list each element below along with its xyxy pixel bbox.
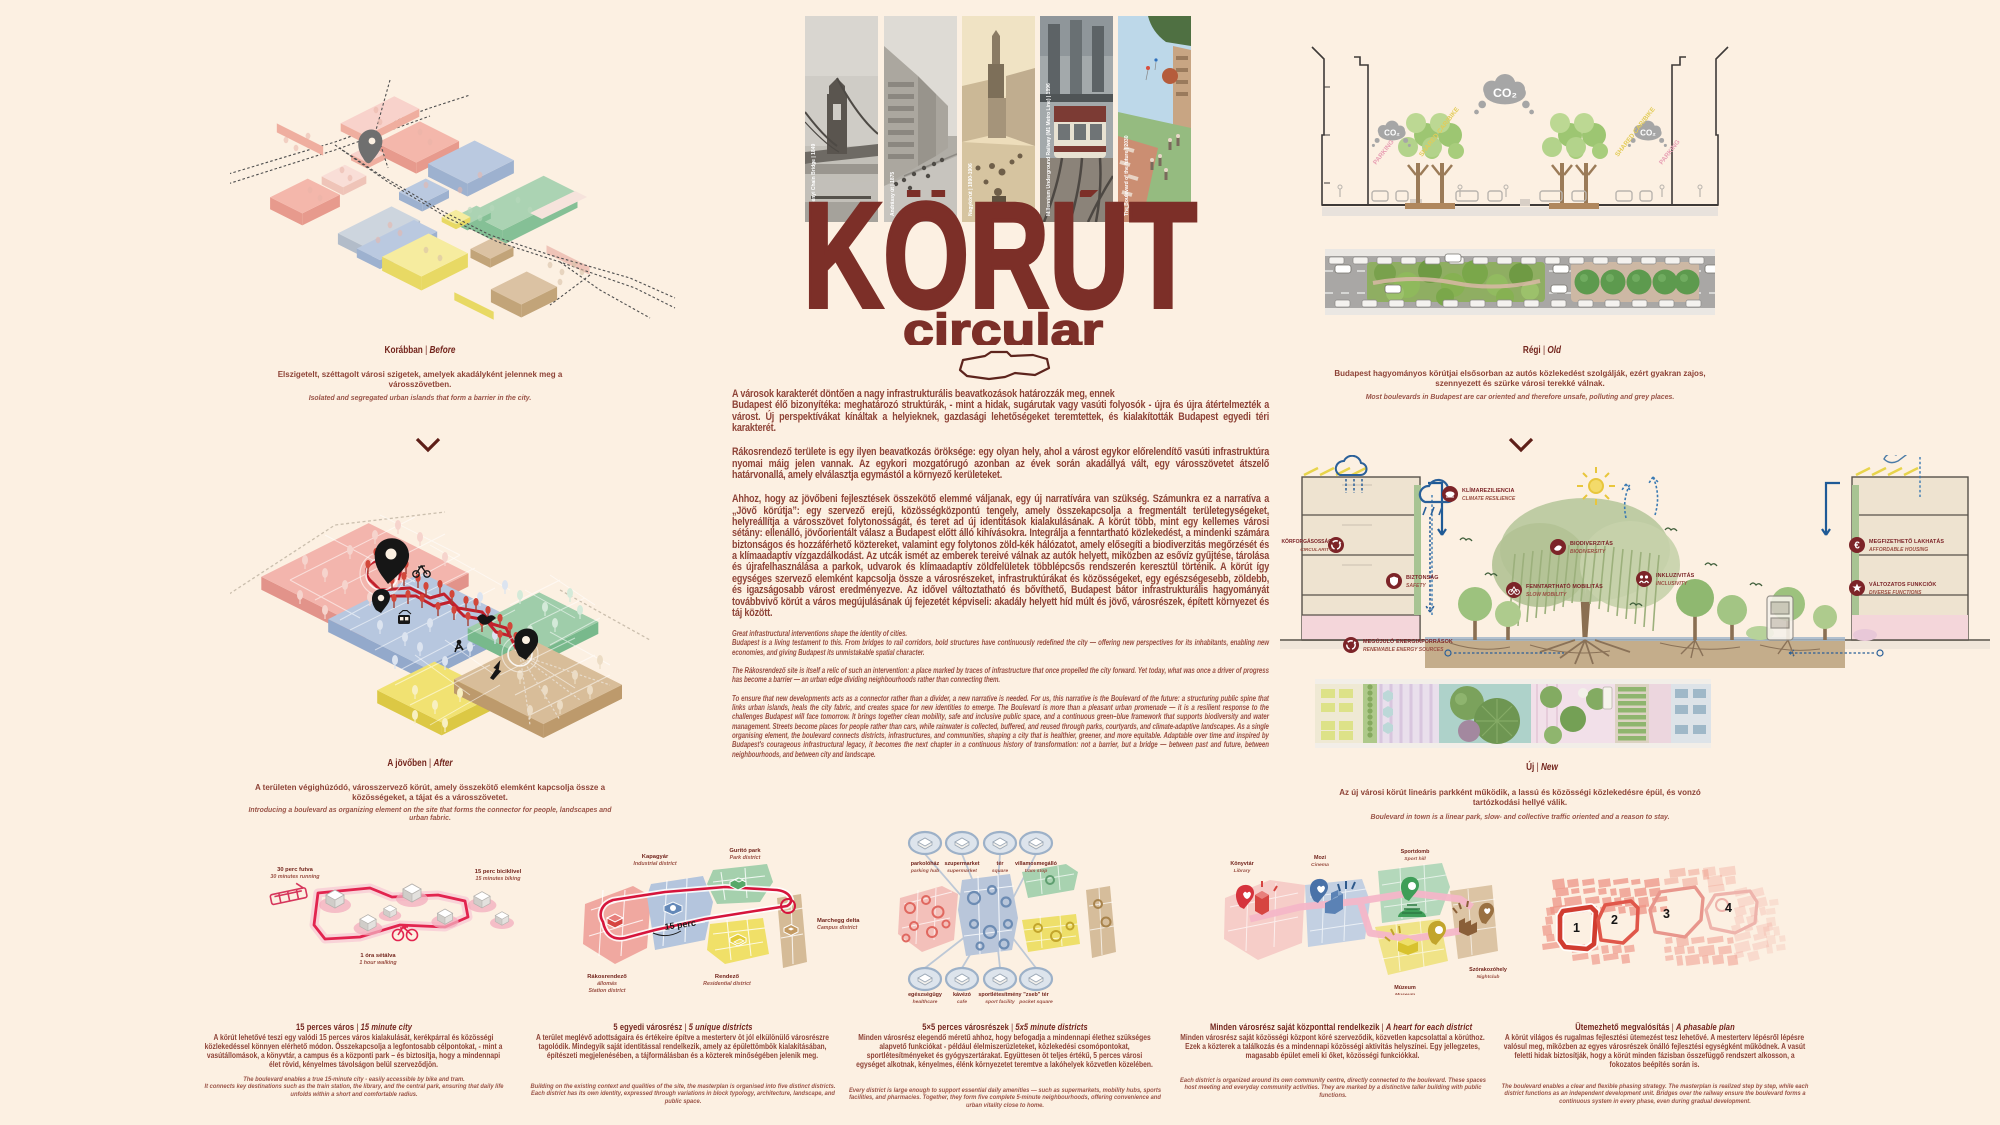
- svg-text:Szórakozóhely: Szórakozóhely: [1469, 967, 1507, 973]
- svg-text:tram stop: tram stop: [1025, 868, 1048, 874]
- svg-text:square: square: [992, 868, 1008, 874]
- svg-text:SLOW MOBILITY: SLOW MOBILITY: [1526, 592, 1567, 598]
- svg-text:cafe: cafe: [957, 999, 967, 1005]
- svg-text:KLÍMAREZILIENCIA: KLÍMAREZILIENCIA: [1462, 486, 1515, 494]
- svg-text:Cinema: Cinema: [1311, 862, 1329, 868]
- svg-text:INKLUZIVITÁS: INKLUZIVITÁS: [1656, 572, 1695, 579]
- svg-text:villamosmegálló: villamosmegálló: [1015, 861, 1058, 867]
- svg-text:DIVERSE FUNCTIONS: DIVERSE FUNCTIONS: [1869, 590, 1922, 596]
- svg-text:KÖRFORGÁSOSSÁG: KÖRFORGÁSOSSÁG: [1281, 538, 1332, 545]
- svg-text:PARKING: PARKING: [1372, 139, 1396, 167]
- svg-text:MEGÚJULÓ ENERGIAFORRÁSOK: MEGÚJULÓ ENERGIAFORRÁSOK: [1363, 637, 1453, 645]
- svg-text:tér: tér: [997, 861, 1005, 867]
- svg-text:Múzeum: Múzeum: [1394, 985, 1416, 991]
- svg-text:Könyvtár: Könyvtár: [1230, 861, 1254, 867]
- svg-text:SAFETY: SAFETY: [1406, 583, 1426, 589]
- svg-text:Industrial district: Industrial district: [633, 861, 676, 867]
- svg-text:30 perc futva: 30 perc futva: [277, 867, 314, 873]
- svg-text:CIRCULARITY: CIRCULARITY: [1300, 547, 1333, 552]
- svg-text:1: 1: [1573, 921, 1580, 935]
- svg-text:MEGFIZETHETŐ LAKHATÁS: MEGFIZETHETŐ LAKHATÁS: [1869, 538, 1944, 545]
- svg-text:Nightclub: Nightclub: [1477, 974, 1500, 980]
- svg-text:Marchegg delta: Marchegg delta: [817, 918, 860, 924]
- svg-text:FENNTARTHATÓ MOBILITÁS: FENNTARTHATÓ MOBILITÁS: [1526, 582, 1603, 590]
- svg-text:BIODIVERZITÁS: BIODIVERZITÁS: [1570, 540, 1613, 547]
- svg-text:szupermarket: szupermarket: [944, 861, 979, 867]
- svg-text:BIZTONSÁG: BIZTONSÁG: [1406, 574, 1439, 581]
- svg-text:healthcare: healthcare: [913, 999, 938, 1005]
- svg-text:3: 3: [1663, 907, 1670, 921]
- svg-text:1 óra sétálva: 1 óra sétálva: [360, 953, 396, 959]
- svg-text:Gurító park: Gurító park: [729, 848, 761, 854]
- svg-text:Mozi: Mozi: [1314, 855, 1326, 861]
- svg-text:circular: circular: [903, 304, 1103, 345]
- svg-text:15 perc biciklivel: 15 perc biciklivel: [475, 869, 522, 875]
- svg-text:BIODIVERSITY: BIODIVERSITY: [1570, 549, 1606, 555]
- svg-text:Station district: Station district: [588, 988, 625, 994]
- svg-text:RENEWABLE ENERGY SOURCES: RENEWABLE ENERGY SOURCES: [1363, 647, 1444, 653]
- svg-text:CO₂: CO₂: [1640, 128, 1656, 137]
- svg-text:AFFORDABLE HOUSING: AFFORDABLE HOUSING: [1868, 547, 1928, 553]
- svg-text:sportlétesítmény: sportlétesítmény: [978, 992, 1021, 998]
- svg-text:INCLUSIVITY: INCLUSIVITY: [1656, 581, 1688, 587]
- svg-text:30 minutes running: 30 minutes running: [270, 874, 320, 880]
- svg-text:Residential district: Residential district: [703, 981, 751, 987]
- svg-text:Sport hill: Sport hill: [1404, 856, 1426, 862]
- svg-text:CO₂: CO₂: [1493, 86, 1517, 100]
- svg-text:pocket square: pocket square: [1018, 999, 1053, 1005]
- svg-text:Kapagyár: Kapagyár: [642, 854, 669, 860]
- svg-text:CO₂: CO₂: [1384, 128, 1400, 137]
- svg-text:Campus district: Campus district: [817, 925, 857, 931]
- svg-text:Rendező: Rendező: [715, 974, 740, 980]
- svg-text:Museum: Museum: [1395, 992, 1416, 995]
- svg-text:Sportdomb: Sportdomb: [1401, 849, 1430, 855]
- svg-text:€: €: [1854, 541, 1860, 552]
- svg-text:CLIMATE RESILIENCE: CLIMATE RESILIENCE: [1462, 496, 1516, 502]
- svg-text:Park district: Park district: [730, 855, 761, 861]
- svg-text:15 minutes biking: 15 minutes biking: [475, 876, 521, 882]
- svg-text:1 hour walking: 1 hour walking: [359, 960, 397, 966]
- svg-text:sport facility: sport facility: [985, 999, 1015, 1005]
- svg-text:2: 2: [1611, 913, 1618, 927]
- svg-text:"zseb" tér: "zseb" tér: [1023, 992, 1049, 998]
- svg-text:Library: Library: [1234, 868, 1251, 874]
- svg-text:4: 4: [1725, 901, 1732, 915]
- svg-text:egészségügy: egészségügy: [908, 992, 942, 998]
- svg-text:állomás: állomás: [597, 981, 617, 987]
- svg-text:VÁLTOZATOS FUNKCIÓK: VÁLTOZATOS FUNKCIÓK: [1869, 580, 1936, 588]
- svg-text:kávézó: kávézó: [953, 992, 972, 998]
- svg-text:parkolóház: parkolóház: [911, 861, 940, 867]
- svg-text:supermarket: supermarket: [947, 868, 977, 874]
- svg-text:parking hub: parking hub: [910, 868, 939, 874]
- svg-text:Rákosrendező: Rákosrendező: [587, 974, 627, 980]
